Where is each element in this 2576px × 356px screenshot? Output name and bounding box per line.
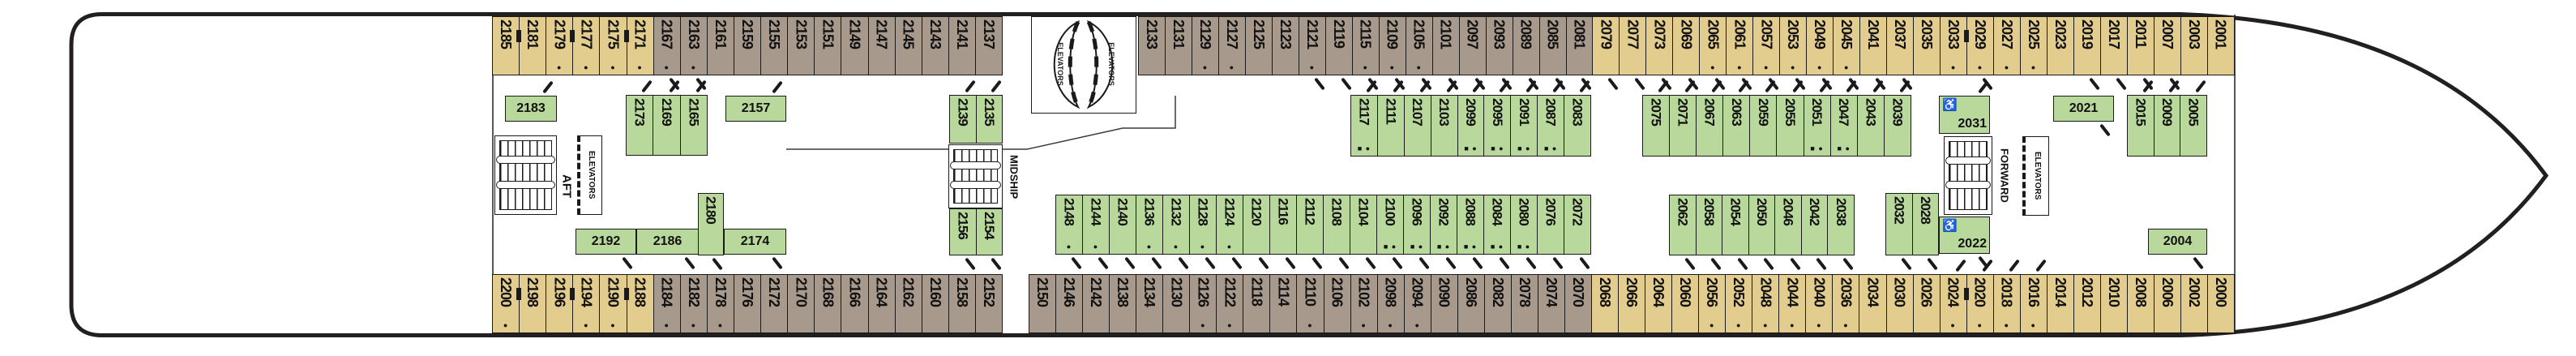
cabin-number: 2190 [605,277,620,307]
cabin-symbols: ● [1200,243,1205,251]
cabin-symbols: ■ ● [1517,243,1530,251]
cabin-number: 2157 [742,101,771,116]
cabin-2020: 2020● [1966,274,1994,333]
cabin-number: 2072 [1571,198,1585,225]
cabin-2171: 2171● [627,16,654,75]
stairs-treads [953,149,998,204]
cabin-2065: 2065● [1699,16,1727,75]
cabin-number: 2029 [1973,19,1988,49]
cabin-number: 2131 [1171,19,1186,49]
cabin-2075: 2075 [1642,95,1670,157]
cabin-number: 2051 [1810,98,1824,126]
cabin-2148: 2148● [1055,195,1083,255]
cabin-number: 2028 [1919,196,1932,224]
elevators-label: ELEVATORS [2033,152,2041,199]
midship-elevator-banks: ELEVATORS ELEVATORS [1032,17,1135,112]
cabin-number: 2060 [1678,277,1692,307]
cabin-2137: 2137 [975,16,1003,75]
cabin-number: 2009 [2160,98,2174,126]
cabin-2083: 2083 [1564,95,1591,157]
cabin-number: 2069 [1679,19,1693,49]
cabin-2107: 2107 [1404,95,1431,157]
cabin-number: 2129 [1198,19,1213,49]
cabin-2064: 2064 [1645,274,1672,333]
cabin-2116: 2116 [1269,195,1297,255]
cabin-2104: 2104 [1350,195,1377,255]
cabin-2130: 2130 [1162,274,1190,333]
cabin-symbols: ■ ● [1491,145,1504,152]
cabin-2053: 2053● [1779,16,1807,75]
cabin-2034: 2034 [1859,274,1886,333]
connecting-room-mark [570,30,575,42]
cabin-number: 2037 [1893,19,1907,49]
cabin-symbols: ● [1843,322,1848,329]
cabin-number: 2107 [1410,98,1424,126]
cabin-symbols: ● [610,64,615,71]
cabin-number: 2058 [1702,198,1716,225]
cabin-symbols: ● [1307,322,1312,329]
top-cabin-row-forward: 213321312129●2127●212521232121●21192115●… [1139,16,2235,75]
cabin-number: 2040 [1812,277,1826,307]
cabin-2045: 2045● [1833,16,1860,75]
cabin-number: 2169 [660,98,674,126]
cabin-2003: 2003 [2180,16,2208,75]
cabin-2032: 2032 [1885,193,1913,255]
cabin-2071: 2071 [1669,95,1697,157]
top-cabin-row-aft: 218521812179●2177●2175●2171●2167●2163●21… [493,16,1003,75]
cabin-2182: 2182● [680,274,708,333]
cabin-number: 2005 [2187,98,2201,126]
cabin-number: 2166 [847,277,862,307]
cabin-number: 2047 [1837,98,1851,126]
aft-stairs-icon [494,135,557,215]
cabin-number: 2022 [1958,237,1987,251]
cabin-number: 2092 [1437,198,1451,225]
cabin-symbols: ● [1817,64,1822,71]
cabin-2005: 2005 [2180,95,2207,157]
cabin-number: 2104 [1357,198,1371,225]
cabin-symbols: ● [1950,322,1955,329]
cabin-symbols: ● [1816,322,1821,329]
cabin-symbols: ● [664,64,669,71]
cabin-number: 2048 [1758,277,1773,307]
cabin-2170: 2170 [787,274,815,333]
cabin-number: 2164 [875,277,889,307]
cabin-2094: 2094● [1404,274,1431,333]
inside-cabins-top-center-1: 2117■ ●2111210721032099■ ●2095■ ●2091■ ●… [1351,95,1591,157]
cabin-2194: 2194● [572,274,600,333]
cabin-2086: 2086 [1457,274,1485,333]
cabin-2049: 2049● [1806,16,1834,75]
cabin-2001: 2001 [2207,16,2235,75]
cabin-2109: 2109● [1379,16,1406,75]
cabin-2004: 2004 [2148,229,2207,255]
cabin-2057: 2057● [1752,16,1780,75]
cabin-number: 2159 [740,19,755,49]
cabin-2166: 2166 [841,274,868,333]
cabin-2088: 2088■ ● [1457,195,1484,255]
aft-elevators: ELEVATORS [577,135,602,215]
cabin-2024: 2024● [1940,274,1967,333]
cabin-number: 2065 [1705,19,1720,49]
cabin-number: 2090 [1437,277,1452,307]
cabin-2151: 2151 [814,16,841,75]
cabin-symbols: ● [1710,64,1715,71]
cabin-number: 2000 [2214,277,2228,307]
cabin-number: 2068 [1598,277,1612,307]
cabin-number: 2135 [982,98,996,126]
cabin-2033: 2033● [1940,16,1967,75]
cabin-number: 2043 [1864,98,1877,126]
forward-elevators: ELEVATORS [2022,136,2049,216]
cabin-2069: 2069 [1672,16,1700,75]
cabin-symbols: ■ ● [1437,243,1450,251]
cabin-2162: 2162 [895,274,922,333]
cabin-2157: 2157 [725,96,786,122]
cabin-number: 2114 [1276,277,1290,306]
cabin-number: 2151 [820,19,835,49]
cabin-number: 2004 [2163,234,2193,249]
cabin-number: 2108 [1330,198,1344,225]
cabin-2169: 2169 [653,95,680,156]
cabin-number: 2061 [1732,19,1747,49]
cabin-2179: 2179● [546,16,573,75]
cabin-number: 2046 [1782,198,1795,225]
cabin-number: 2097 [1466,19,1480,49]
inside-cabins-bottom-center-1: 2148●2144●21402136●2132●2128●2124●212021… [1056,195,1591,255]
cabin-number: 2153 [794,19,808,49]
inside-cabins-top-center-2: 2075207120672063205920552051■ ●2047■ ●20… [1643,95,1911,157]
cabin-number: 2105 [1412,19,1427,49]
cabin-2015: 2015 [2127,95,2155,157]
cabin-number: 2172 [767,277,781,307]
cabin-symbols: ● [1203,64,1208,71]
cabin-number: 2010 [2107,277,2121,307]
cabin-2136: 2136● [1136,195,1163,255]
cabin-number: 2180 [704,196,718,224]
cabin-2066: 2066 [1618,274,1645,333]
cabin-number: 2198 [525,277,540,307]
cabin-2068: 2068 [1591,274,1619,333]
cabin-symbols: ● [610,322,615,329]
cabin-number: 2063 [1730,98,1744,126]
cabin-2051: 2051■ ● [1804,95,1831,157]
cabin-number: 2099 [1464,98,1478,126]
inside-cabins-bottom-pair: 20322028 [1886,193,1939,255]
cabin-2132: 2132● [1162,195,1190,255]
cabin-symbols: ■ ● [1491,243,1504,251]
stairs-treads [499,140,552,210]
cabin-number: 2084 [1491,198,1504,225]
cabin-symbols: ● [584,64,588,71]
cabin-2155: 2155 [760,16,788,75]
cabin-symbols: ● [1977,322,1982,329]
cabin-number: 2167 [660,19,674,49]
forward-stairs-icon [1944,136,1992,215]
cabin-number: 2006 [2160,277,2175,307]
inside-cabin-2180: 2180 [699,193,724,255]
cabin-2039: 2039 [1884,95,1911,157]
cabin-2092: 2092■ ● [1430,195,1457,255]
cabin-2009: 2009 [2154,95,2181,157]
cabin-symbols: ■ ● [1838,145,1851,152]
cabin-2007: 2007 [2154,16,2181,75]
cabin-number: 2185 [499,19,513,49]
cabin-number: 2050 [1755,198,1769,225]
cabin-number: 2141 [955,19,969,49]
cabin-2091: 2091■ ● [1510,95,1538,157]
cabin-2125: 2125 [1245,16,1273,75]
cabin-number: 2186 [653,234,683,249]
cabin-2180: 2180 [698,193,724,255]
inside-cabins-bottom-center-2: 2062205820542050204620422038 [1670,195,1855,255]
cabin-number: 2192 [592,234,621,249]
section-label-midship: MIDSHIP [1004,144,1024,209]
cabin-symbols: ● [1790,322,1795,329]
cabin-symbols: ■ ● [1517,145,1530,152]
cabin-2052: 2052● [1725,274,1752,333]
cabin-symbols: ● [2004,322,2009,329]
cabin-2119: 2119 [1325,16,1353,75]
cabin-2138: 2138 [1109,274,1136,333]
cabin-number: 2019 [2080,19,2095,49]
cabin-2078: 2078 [1511,274,1538,333]
cabin-number: 2057 [1759,19,1774,49]
cabin-2058: 2058 [1696,195,1723,255]
cabin-2156: 2156 [949,208,977,255]
cabin-symbols: ■ ● [1410,243,1423,251]
cabin-symbols: ■ ● [1358,145,1371,152]
bottom-cabin-row-forward: 2150214621422138213421302126●2122●211821… [1029,274,2235,333]
cabin-symbols: ● [1978,64,1983,71]
cabin-2106: 2106 [1324,274,1351,333]
cabin-number: 2038 [1834,198,1848,225]
cabin-2110: 2110● [1296,274,1324,333]
cabin-number: 2139 [956,98,969,126]
cabin-number: 2115 [1359,19,1373,48]
cabin-number: 2073 [1652,19,1667,49]
cabin-number: 2161 [713,19,728,49]
cabin-number: 2026 [1919,277,1934,307]
cabin-2010: 2010 [2100,274,2128,333]
cabin-2126: 2126● [1189,274,1217,333]
cabin-2178: 2178● [707,274,734,333]
cabin-number: 2080 [1517,198,1531,225]
cabin-number: 2071 [1676,98,1690,126]
cabin-number: 2074 [1544,277,1559,307]
cabin-number: 2194 [579,277,593,307]
cabin-number: 2027 [2000,19,2014,49]
cabin-number: 2171 [633,19,648,49]
cabin-2022-accessible: ♿ 2022 [1939,217,1990,254]
cabin-number: 2034 [1865,277,1880,307]
cabin-2017: 2017 [2100,16,2128,75]
cabin-2047: 2047■ ● [1830,95,1858,157]
cabin-symbols: ● [637,64,642,71]
section-label-aft: AFT [556,154,577,219]
cabin-2023: 2023 [2047,16,2074,75]
cabin-2121: 2121● [1299,16,1326,75]
deck-plan: 218521812179●2177●2175●2171●2167●2163●21… [0,0,2576,356]
elevators-label: ELEVATORS [1056,42,1064,86]
cabin-2018: 2018● [1993,274,2021,333]
cabin-number: 2089 [1519,19,1534,49]
cabin-number: 2109 [1385,19,1400,49]
cabin-number: 2095 [1491,98,1504,126]
cabin-number: 2021 [2069,101,2099,116]
cabin-number: 2121 [1305,19,1320,49]
cabin-2154: 2154 [976,208,1003,255]
cabin-number: 2081 [1572,19,1586,49]
cabin-number: 2064 [1651,277,1666,307]
cabin-symbols: ● [1230,64,1235,71]
connecting-room-mark [624,30,629,42]
cabin-2102: 2102● [1350,274,1378,333]
cabin-2041: 2041 [1859,16,1887,75]
cabin-2070: 2070 [1564,274,1592,333]
cabin-number: 2176 [740,277,755,307]
cabin-2200: 2200● [492,274,520,333]
cabin-2028: 2028 [1912,193,1940,255]
cabin-2141: 2141 [948,16,976,75]
cabin-2174: 2174 [724,229,786,255]
cabin-2063: 2063 [1722,95,1750,157]
cabin-number: 2085 [1546,19,1560,49]
cabin-number: 2087 [1544,98,1558,126]
cabin-number: 2088 [1464,198,1478,225]
cabin-symbols: ● [1363,64,1368,71]
cabin-number: 2031 [1958,117,1987,131]
cabin-number: 2011 [2133,19,2148,48]
cabin-number: 2137 [982,19,996,49]
cabin-2016: 2016● [2020,274,2048,333]
cabin-2124: 2124● [1216,195,1243,255]
cabin-2190: 2190● [599,274,627,333]
cabin-number: 2101 [1439,19,1453,49]
cabin-number: 2118 [1249,277,1264,306]
cabin-number: 2017 [2107,19,2121,49]
cabin-2096: 2096■ ● [1403,195,1431,255]
cabin-number: 2106 [1330,277,1345,307]
cabin-2036: 2036● [1832,274,1859,333]
cabin-2089: 2089 [1513,16,1540,75]
midship-elevator-lobby: ELEVATORS ELEVATORS [1031,16,1136,114]
cabin-2054: 2054 [1722,195,1749,255]
cabin-number: 2066 [1624,277,1639,307]
cabin-2044: 2044● [1778,274,1806,333]
cabin-number: 2126 [1196,277,1210,307]
cabin-number: 2130 [1169,277,1183,307]
cabin-symbols: ● [1763,322,1768,329]
cabin-number: 2056 [1705,277,1719,307]
cabin-2145: 2145 [895,16,922,75]
cabin-number: 2175 [605,19,620,49]
cabin-2035: 2035 [1913,16,1941,75]
cabin-2108: 2108 [1323,195,1350,255]
cabin-2183: 2183 [505,96,557,122]
cabin-number: 2102 [1357,277,1371,307]
cabin-2105: 2105● [1406,16,1433,75]
cabin-number: 2146 [1062,277,1076,307]
cabin-2043: 2043 [1857,95,1885,157]
cabin-number: 2067 [1703,98,1717,126]
cabin-2161: 2161 [707,16,734,75]
cabin-2140: 2140 [1109,195,1136,255]
cabin-2139: 2139 [949,95,977,144]
cabin-2037: 2037 [1886,16,1914,75]
cabin-2175: 2175● [599,16,627,75]
cabin-number: 2091 [1517,98,1531,126]
cabin-symbols: ● [2005,64,2009,71]
cabin-number: 2086 [1464,277,1478,307]
section-label-forward: FORWARD [1994,136,2015,215]
cabin-number: 2041 [1866,19,1881,49]
cabin-2158: 2158 [948,274,976,333]
cabin-symbols: ● [1844,64,1849,71]
stairs-landing [950,161,1001,169]
cabin-2177: 2177● [572,16,600,75]
cabin-number: 2173 [633,98,647,126]
cabin-number: 2200 [499,277,513,307]
cabin-2112: 2112 [1296,195,1324,255]
cabin-symbols: ■ ● [1464,145,1477,152]
cabin-number: 2165 [687,98,700,126]
cabin-2055: 2055 [1776,95,1804,157]
cabin-2098: 2098● [1377,274,1405,333]
cabin-2111: 2111 [1377,95,1405,157]
cabin-2042: 2042 [1801,195,1829,255]
cabin-number: 2052 [1731,277,1746,307]
stairs-landing [496,156,555,164]
cabin-symbols: ● [1791,64,1795,71]
cabin-2167: 2167● [653,16,681,75]
inside-cabins-bottom-midship: 21562154 [950,208,1003,255]
cabin-2163: 2163● [680,16,708,75]
cabin-number: 2188 [633,277,648,307]
cabin-2048: 2048● [1752,274,1779,333]
cabin-number: 2044 [1785,277,1799,307]
connecting-room-mark [1964,30,1969,42]
connecting-room-mark [624,288,629,300]
cabin-number: 2098 [1384,277,1398,307]
cabin-symbols: ● [2031,322,2036,329]
cabin-2153: 2153 [787,16,815,75]
cabin-number: 2112 [1303,198,1317,225]
cabin-number: 2059 [1757,98,1770,126]
cabin-symbols: ● [1388,322,1393,329]
cabin-number: 2100 [1384,198,1397,225]
cabin-number: 2127 [1225,19,1239,49]
cabin-2152: 2152 [975,274,1003,333]
cabin-number: 2036 [1838,277,1853,307]
midship-stairs-icon [948,144,1003,208]
cabin-number: 2136 [1143,198,1157,225]
connecting-room-mark [570,288,575,300]
cabin-number: 2083 [1571,98,1585,126]
cabin-2011: 2011 [2127,16,2155,75]
cabin-2196: 2196 [546,274,573,333]
cabin-2134: 2134 [1136,274,1163,333]
cabin-number: 2125 [1252,19,1266,49]
cabin-symbols: ● [1310,64,1315,71]
cabin-number: 2144 [1089,198,1103,225]
cabin-2081: 2081 [1566,16,1594,75]
elevators-label: ELEVATORS [1107,42,1115,86]
cabin-2056: 2056● [1698,274,1726,333]
cabin-number: 2182 [687,277,701,307]
cabin-number: 2120 [1250,198,1264,225]
cabin-number: 2142 [1089,277,1103,307]
